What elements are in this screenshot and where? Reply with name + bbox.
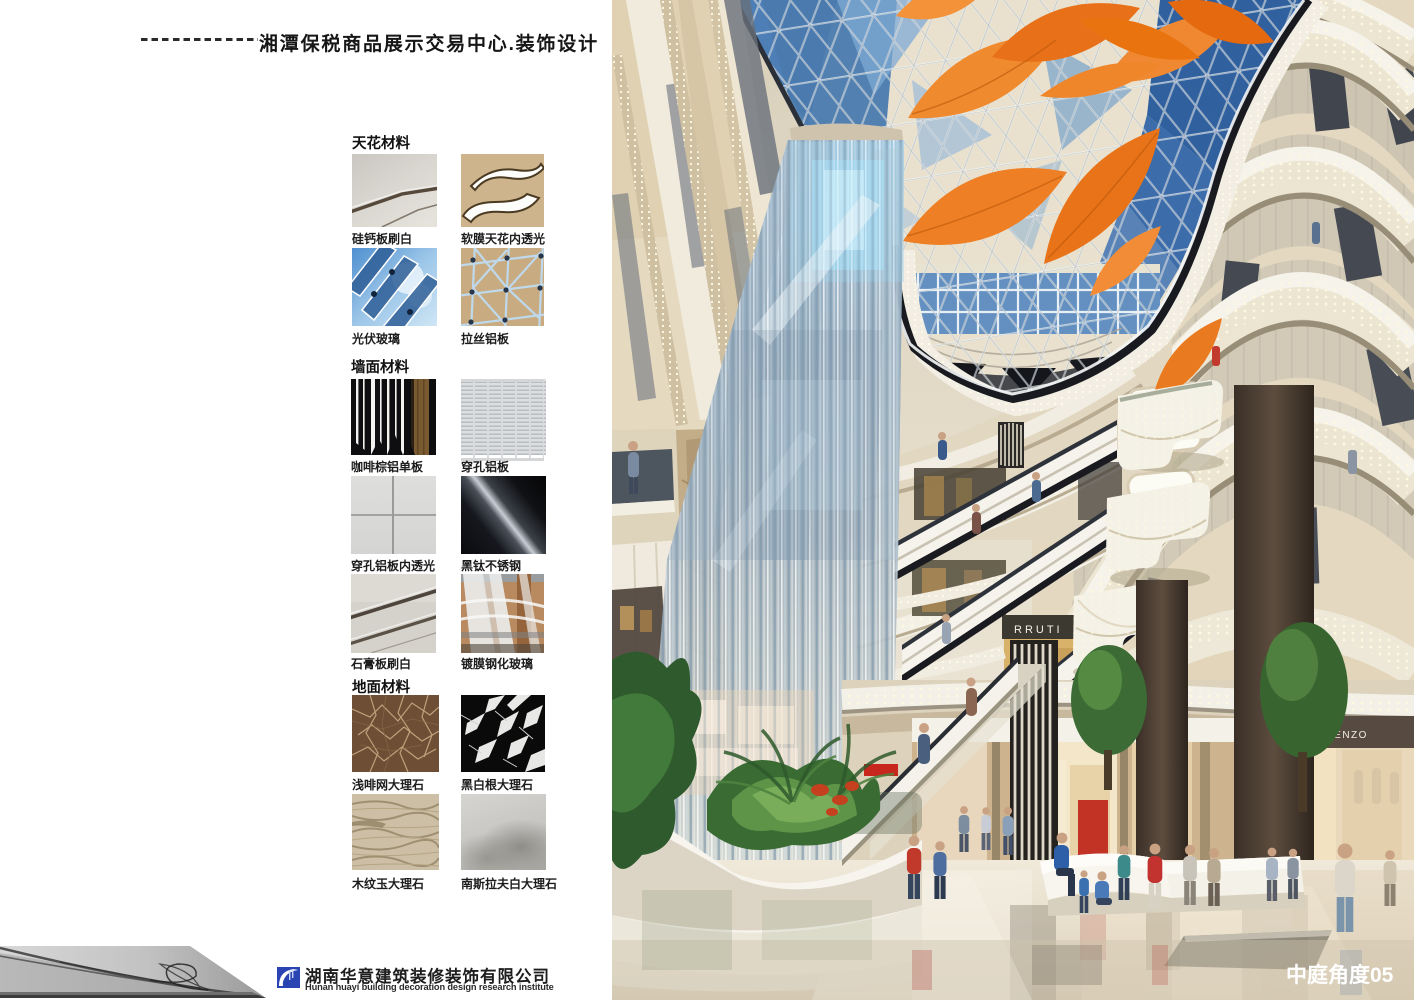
svg-text:中庭角度05: 中庭角度05 [1286,963,1394,987]
svg-text:RRUTI: RRUTI [1014,624,1063,636]
